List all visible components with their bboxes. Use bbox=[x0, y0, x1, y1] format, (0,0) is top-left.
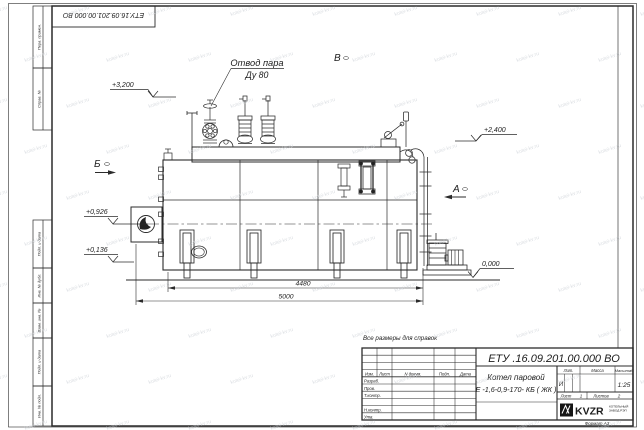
watermark-text: kotel-kv.ru bbox=[270, 143, 294, 156]
sheet-no-value: 1 bbox=[580, 394, 583, 399]
watermark-text: kotel-kv.ru bbox=[352, 235, 376, 248]
watermark-text: kotel-kv.ru bbox=[270, 327, 294, 340]
svg-text:5000: 5000 bbox=[278, 294, 293, 301]
right-riser-pipe bbox=[406, 149, 432, 266]
watermark-text: kotel-kv.ru bbox=[476, 281, 500, 294]
view-marker-a: А bbox=[444, 184, 467, 199]
watermark-text: kotel-kv.ru bbox=[312, 373, 336, 386]
watermark-text: kotel-kv.ru bbox=[106, 327, 130, 340]
product-model: Е -1,6-0,9-170- КБ ( ЖК ) bbox=[476, 385, 557, 394]
watermark-text: kotel-kv.ru bbox=[394, 5, 418, 18]
masshtab-value: 1:25 bbox=[618, 382, 631, 389]
watermark-text: kotel-kv.ru bbox=[188, 143, 212, 156]
watermark-text: kotel-kv.ru bbox=[558, 5, 582, 18]
watermark-text: kotel-kv.ru bbox=[558, 281, 582, 294]
watermark-text: kotel-kv.ru bbox=[66, 97, 90, 110]
watermark-text: kotel-kv.ru bbox=[66, 281, 90, 294]
watermark-text: kotel-kv.ru bbox=[106, 419, 130, 430]
header-left-fitting bbox=[187, 111, 197, 147]
watermark-text: kotel-kv.ru bbox=[598, 143, 622, 156]
watermark-text: kotel-kv.ru bbox=[598, 51, 622, 64]
lit-label: Лит. bbox=[563, 368, 574, 373]
watermark-text: kotel-kv.ru bbox=[640, 5, 644, 18]
watermark-text: kotel-kv.ru bbox=[24, 143, 48, 156]
elevation-0136: +0,136 bbox=[84, 247, 134, 262]
watermark-text: kotel-kv.ru bbox=[558, 373, 582, 386]
watermark-text: kotel-kv.ru bbox=[312, 5, 336, 18]
callout-line2: Ду 80 bbox=[245, 70, 269, 80]
watermark-text: kotel-kv.ru bbox=[24, 51, 48, 64]
watermark-text: kotel-kv.ru bbox=[640, 281, 644, 294]
view-marker-b: Б bbox=[94, 159, 116, 175]
watermark-text: kotel-kv.ru bbox=[394, 97, 418, 110]
svg-text:+3,200: +3,200 bbox=[112, 82, 134, 89]
top-left-fitting bbox=[164, 149, 172, 160]
company-cell: KVZR КОТЕЛЬНЫЙ ЗАВОД РЭП bbox=[560, 404, 628, 418]
watermark-text: kotel-kv.ru bbox=[476, 189, 500, 202]
svg-text:+2,400: +2,400 bbox=[484, 127, 506, 134]
watermark-text: kotel-kv.ru bbox=[148, 97, 172, 110]
company-sub2: ЗАВОД РЭП bbox=[609, 409, 627, 413]
col-podp: Подп. bbox=[439, 371, 450, 376]
massa-label: Масса bbox=[591, 368, 604, 373]
watermark-text: kotel-kv.ru bbox=[148, 5, 172, 18]
watermark-text: kotel-kv.ru bbox=[106, 51, 130, 64]
col-izm: Изм. bbox=[365, 371, 374, 376]
company-logo-text: KVZR bbox=[575, 406, 604, 418]
watermark-text: kotel-kv.ru bbox=[148, 281, 172, 294]
document-number: ЕТУ .16.09.201.00.000 ВО bbox=[488, 353, 620, 365]
watermark-text: kotel-kv.ru bbox=[24, 419, 48, 430]
watermark-text: kotel-kv.ru bbox=[230, 5, 254, 18]
watermark-text: kotel-kv.ru bbox=[598, 327, 622, 340]
svg-text:+0,136: +0,136 bbox=[86, 247, 108, 254]
elevation-3200: +3,200 bbox=[110, 82, 176, 97]
watermark-text: kotel-kv.ru bbox=[148, 373, 172, 386]
watermark-text: kotel-kv.ru bbox=[0, 5, 8, 18]
role-prov: Пров. bbox=[364, 386, 375, 391]
graph-perv-primen: Перв. примен. bbox=[37, 24, 42, 50]
watermark-text: kotel-kv.ru bbox=[598, 235, 622, 248]
watermark-text: kotel-kv.ru bbox=[66, 189, 90, 202]
support-legs bbox=[180, 230, 411, 278]
sheet-numbers: Лист 1 Листов 2 bbox=[557, 392, 633, 399]
watermark-text: kotel-kv.ru bbox=[516, 143, 540, 156]
svg-text:А: А bbox=[452, 184, 460, 195]
reference-note: Все размеры для справок bbox=[363, 335, 438, 342]
watermark-text: kotel-kv.ru bbox=[434, 327, 458, 340]
watermark-text: kotel-kv.ru bbox=[640, 189, 644, 202]
watermark-text: kotel-kv.ru bbox=[0, 189, 8, 202]
watermark-text: kotel-kv.ru bbox=[270, 419, 294, 430]
boiler-side-view bbox=[126, 96, 500, 280]
svg-text:4480: 4480 bbox=[295, 281, 310, 288]
elevation-2400: +2,400 bbox=[455, 127, 517, 141]
graph-sprav-no: Справ. № bbox=[37, 89, 42, 107]
left-margin-columns: Перв. примен. Справ. № Подп. и дата Инв.… bbox=[33, 6, 52, 426]
watermark-text: kotel-kv.ru bbox=[188, 327, 212, 340]
sheets-total-value: 2 bbox=[617, 394, 621, 399]
watermark-text: kotel-kv.ru bbox=[230, 281, 254, 294]
watermark-text: kotel-kv.ru bbox=[476, 5, 500, 18]
watermark-text: kotel-kv.ru bbox=[0, 373, 8, 386]
title-block: Изм. Лист N докум. Подп. Дата Разраб. Пр… bbox=[362, 348, 634, 426]
role-n-kontr: Н.контр. bbox=[364, 407, 382, 412]
dimension-overall-length: 5000 bbox=[136, 244, 423, 305]
watermark-text: kotel-kv.ru bbox=[352, 143, 376, 156]
col-list: Лист bbox=[378, 371, 390, 376]
burner bbox=[131, 207, 162, 242]
safety-valve-2 bbox=[260, 96, 276, 147]
svg-text:0,000: 0,000 bbox=[482, 261, 500, 268]
watermark-text: kotel-kv.ru bbox=[476, 97, 500, 110]
watermark-text: kotel-kv.ru bbox=[434, 51, 458, 64]
col-data: Дата bbox=[459, 371, 472, 376]
watermark-text: kotel-kv.ru bbox=[516, 327, 540, 340]
lever-valve bbox=[381, 112, 415, 163]
watermark-text: kotel-kv.ru bbox=[558, 97, 582, 110]
watermark-text: kotel-kv.ru bbox=[0, 97, 8, 110]
sheets-total-label: Листов bbox=[592, 394, 609, 399]
svg-text:Б: Б bbox=[94, 159, 101, 170]
watermark-text: kotel-kv.ru bbox=[312, 97, 336, 110]
watermark-text: kotel-kv.ru bbox=[230, 373, 254, 386]
watermark-text: kotel-kv.ru bbox=[188, 51, 212, 64]
watermark-text: kotel-kv.ru bbox=[516, 235, 540, 248]
sheet-no-label: Лист bbox=[560, 394, 572, 399]
watermark-text: kotel-kv.ru bbox=[558, 189, 582, 202]
masshtab-label: Масштаб bbox=[615, 368, 634, 373]
role-razrab: Разраб. bbox=[364, 379, 379, 384]
water-gauge-1 bbox=[338, 164, 350, 197]
signature-table: Изм. Лист N докум. Подп. Дата Разраб. Пр… bbox=[362, 348, 476, 420]
view-marker-v: В bbox=[334, 53, 348, 64]
header-dome bbox=[219, 140, 233, 147]
watermark-text: kotel-kv.ru bbox=[352, 51, 376, 64]
role-t-kontr: Т.контр. bbox=[364, 393, 381, 398]
watermark-text: kotel-kv.ru bbox=[640, 373, 644, 386]
drawing-canvas: ЕТУ.16.09.201.00.000 ВО Перв. примен. Сп… bbox=[0, 0, 644, 430]
graph-podp-data-bottom: Подп. и дата bbox=[37, 349, 42, 374]
watermark-text: kotel-kv.ru bbox=[66, 373, 90, 386]
watermark-text: kotel-kv.ru bbox=[516, 51, 540, 64]
company-logo-mark bbox=[560, 404, 573, 417]
watermark-text: kotel-kv.ru bbox=[640, 97, 644, 110]
watermark-text: kotel-kv.ru bbox=[270, 235, 294, 248]
watermark-text: kotel-kv.ru bbox=[188, 419, 212, 430]
watermark-text: kotel-kv.ru bbox=[106, 235, 130, 248]
svg-text:В: В bbox=[334, 53, 341, 64]
svg-text:+0,926: +0,926 bbox=[86, 209, 108, 216]
drawing-sheet: ЕТУ.16.09.201.00.000 ВО Перв. примен. Сп… bbox=[0, 0, 644, 430]
watermark-text: kotel-kv.ru bbox=[0, 281, 8, 294]
water-gauge-2 bbox=[359, 161, 375, 194]
watermark-text: kotel-kv.ru bbox=[394, 281, 418, 294]
watermark-text: kotel-kv.ru bbox=[312, 281, 336, 294]
elevation-0926: +0,926 bbox=[84, 209, 148, 224]
watermark-text: kotel-kv.ru bbox=[434, 143, 458, 156]
steam-outlet-valve bbox=[202, 100, 218, 147]
graph-inv-dubl: Инв. № дубл. bbox=[37, 274, 42, 298]
graph-inv-podl: Инв. № подл. bbox=[37, 394, 42, 418]
watermark-text: kotel-kv.ru bbox=[106, 143, 130, 156]
elevation-zero: 0,000 bbox=[468, 261, 514, 278]
